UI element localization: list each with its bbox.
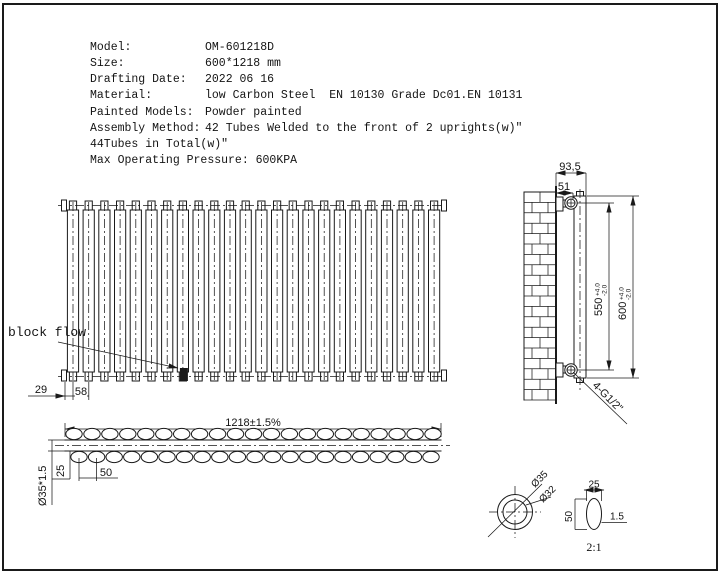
spec-label: Model: — [90, 41, 131, 54]
cross-oval-front — [191, 428, 207, 439]
oval-tube-detail: 50 25 1.5 — [564, 480, 627, 530]
spec-label: 44Tubes in Total(w)" — [90, 138, 228, 151]
dia-32-label: Ø32 — [537, 484, 558, 505]
detail-wall-label: 1.5 — [610, 512, 624, 523]
cross-oval-front — [407, 428, 423, 439]
end-plate — [442, 200, 447, 211]
cross-oval-front — [245, 428, 261, 439]
radiator-technical-drawing: Model: OM-601218D Size: 600*1218 mm Draf… — [0, 0, 720, 574]
blocked-flow-marker — [180, 368, 188, 381]
dim-600-label: 600 — [617, 302, 629, 320]
cross-oval-back — [335, 451, 351, 462]
dim-550-label-group: 550 +4.0 -2.0 — [593, 283, 609, 316]
spec-value: 42 Tubes Welded to the front of 2 uprigh… — [205, 122, 522, 135]
dim-1218-label: 1218±1.5% — [225, 417, 281, 429]
cross-oval-front — [371, 428, 387, 439]
dim-550-tol-minus: -2.0 — [602, 284, 609, 296]
cross-oval-front — [299, 428, 315, 439]
dim-25-label: 25 — [55, 465, 67, 477]
spec-label: Painted Models: — [90, 106, 194, 119]
cross-oval-front — [335, 428, 351, 439]
dim-tube-label: Ø35*1.5 — [37, 466, 49, 506]
dim-29-label: 29 — [35, 384, 47, 396]
cross-oval-front — [156, 428, 172, 439]
wall-bracket-top — [556, 197, 577, 211]
cross-oval-front — [317, 428, 333, 439]
cross-oval-front — [138, 428, 154, 439]
cross-oval-front — [174, 428, 190, 439]
spec-value: 2022 06 16 — [205, 73, 274, 86]
cross-oval-front — [84, 428, 100, 439]
detail-25-label: 25 — [588, 480, 600, 491]
oval-section — [587, 499, 602, 530]
dim-600-tol-minus: -2.0 — [626, 288, 633, 300]
end-plate — [62, 370, 67, 381]
cross-oval-front — [209, 428, 225, 439]
cross-oval-back — [317, 451, 333, 462]
cross-oval-back — [370, 451, 386, 462]
spec-table: Model: OM-601218D Size: 600*1218 mm Draf… — [90, 41, 523, 167]
spec-value: 600*1218 mm — [205, 57, 281, 70]
cross-oval-back — [106, 451, 122, 462]
cross-oval-front — [120, 428, 136, 439]
spec-label: Max Operating Pressure: 600KPA — [90, 154, 297, 167]
upright-tube-detail: Ø35 Ø32 — [488, 469, 559, 538]
cross-oval-back — [352, 451, 368, 462]
cross-oval-back — [176, 451, 192, 462]
cross-oval-back — [229, 451, 245, 462]
detail-50-label: 50 — [564, 510, 575, 522]
dim-550-tol-plus: +4.0 — [594, 283, 601, 296]
cross-oval-front — [281, 428, 297, 439]
dim-600-tol-plus: +4.0 — [618, 287, 625, 300]
cross-oval-back — [124, 451, 140, 462]
spec-label: Drafting Date: — [90, 73, 187, 86]
spec-label: Assembly Method: — [90, 122, 200, 135]
cross-oval-back — [194, 451, 210, 462]
cross-oval-back — [141, 451, 157, 462]
cross-oval-back — [388, 451, 404, 462]
dim-51-label: 51 — [558, 181, 570, 193]
end-plate — [62, 200, 67, 211]
block-flow-label: block flow — [8, 325, 86, 340]
wall-bracket-bottom — [556, 363, 577, 377]
cross-oval-back — [159, 451, 175, 462]
brick-wall — [524, 192, 556, 400]
spec-label: Material: — [90, 89, 152, 102]
cross-oval-front — [389, 428, 405, 439]
cross-oval-back — [300, 451, 316, 462]
spec-value: low Carbon Steel EN 10130 Grade Dc01.EN … — [205, 89, 523, 102]
cross-oval-front — [66, 428, 82, 439]
cross-oval-back — [212, 451, 228, 462]
cross-oval-back — [247, 451, 263, 462]
cross-oval-back — [264, 451, 280, 462]
cross-oval-front — [425, 428, 441, 439]
dim-550-label: 550 — [593, 298, 605, 316]
detail-views: Ø35 Ø32 50 25 1.5 2:1 — [488, 469, 627, 554]
cross-oval-front — [263, 428, 279, 439]
detail-scale-label: 2:1 — [586, 540, 601, 554]
dim-50-label: 50 — [100, 467, 112, 479]
front-view: block flow 29 58 — [8, 200, 448, 400]
cross-oval-back — [405, 451, 421, 462]
cross-oval-back — [423, 451, 439, 462]
spec-value: OM-601218D — [205, 41, 274, 54]
spec-label: Size: — [90, 57, 125, 70]
spec-value: Powder painted — [205, 106, 302, 119]
side-view: 93,5 51 550 +4.0 -2.0 600 +4.0 -2.0 4-G1… — [524, 161, 639, 424]
cross-oval-front — [102, 428, 118, 439]
radiator-tube-array — [67, 201, 439, 381]
cross-oval-front — [227, 428, 243, 439]
end-plate — [442, 370, 447, 381]
dim-58-label: 58 — [75, 386, 87, 398]
fitting-label: 4-G1/2" — [590, 380, 625, 415]
cross-oval-back — [282, 451, 298, 462]
dim-600-label-group: 600 +4.0 -2.0 — [617, 287, 633, 320]
dim-93-5-label: 93,5 — [559, 161, 580, 173]
top-view: 1218±1.5% Ø35*1.5 25 50 — [37, 417, 450, 506]
cross-oval-front — [353, 428, 369, 439]
